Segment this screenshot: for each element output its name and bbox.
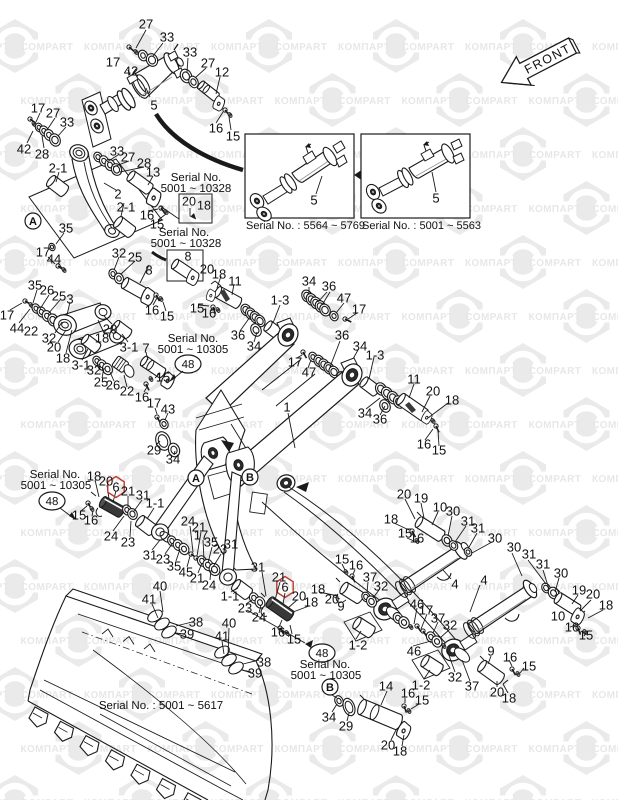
svg-text:31: 31 [536, 557, 550, 572]
svg-text:36: 36 [322, 279, 336, 294]
svg-text:23: 23 [238, 601, 252, 616]
svg-text:28: 28 [35, 147, 49, 162]
svg-text:32: 32 [112, 246, 126, 261]
svg-text:21: 21 [121, 484, 135, 499]
svg-text:11: 11 [228, 274, 242, 289]
svg-text:16: 16 [349, 558, 363, 573]
svg-text:25: 25 [128, 250, 142, 265]
svg-text:18: 18 [393, 744, 407, 759]
svg-text:7: 7 [142, 341, 149, 356]
svg-text:16: 16 [565, 620, 579, 635]
svg-text:36: 36 [373, 412, 387, 427]
svg-text:20: 20 [182, 195, 196, 209]
svg-text:18: 18 [599, 598, 613, 613]
svg-text:5: 5 [310, 193, 317, 208]
svg-text:5: 5 [150, 98, 157, 113]
svg-text:27: 27 [139, 17, 153, 32]
svg-text:1-2: 1-2 [349, 638, 368, 653]
svg-text:21: 21 [272, 570, 286, 585]
svg-text:20: 20 [397, 487, 411, 502]
svg-text:15: 15 [579, 628, 593, 643]
svg-text:25: 25 [52, 289, 66, 304]
svg-text:5001 ~ 10328: 5001 ~ 10328 [151, 238, 222, 250]
svg-text:16: 16 [209, 121, 223, 136]
svg-text:27: 27 [121, 150, 135, 165]
svg-text:15: 15 [335, 552, 349, 567]
svg-text:39: 39 [248, 666, 262, 681]
svg-text:26: 26 [106, 378, 120, 393]
svg-text:4: 4 [480, 573, 487, 588]
svg-text:30: 30 [446, 504, 460, 519]
svg-text:27: 27 [201, 56, 215, 71]
svg-text:5001 ~ 10305: 5001 ~ 10305 [21, 480, 92, 492]
svg-text:35: 35 [59, 221, 73, 236]
svg-text:34: 34 [166, 452, 180, 467]
svg-text:19: 19 [572, 583, 586, 598]
svg-text:30: 30 [507, 540, 521, 555]
svg-text:22: 22 [120, 384, 134, 399]
svg-text:A: A [192, 473, 200, 485]
svg-text:20: 20 [103, 322, 117, 337]
svg-text:33: 33 [183, 45, 197, 60]
svg-text:18: 18 [56, 351, 70, 366]
svg-text:18: 18 [311, 582, 325, 597]
svg-text:37: 37 [465, 679, 479, 694]
svg-text:18: 18 [384, 512, 398, 527]
svg-text:14: 14 [379, 679, 393, 694]
svg-text:24: 24 [104, 529, 118, 544]
svg-text:1-1: 1-1 [221, 589, 240, 604]
svg-text:41: 41 [215, 629, 229, 644]
svg-text:46: 46 [407, 644, 421, 659]
svg-text:5001 ~ 10305: 5001 ~ 10305 [158, 344, 229, 356]
svg-text:17: 17 [106, 55, 120, 70]
svg-text:16: 16 [271, 625, 285, 640]
svg-text:48: 48 [182, 359, 195, 371]
svg-text:31: 31 [522, 547, 536, 562]
svg-text:2-1: 2-1 [49, 161, 68, 176]
svg-text:17: 17 [147, 396, 161, 411]
svg-text:29: 29 [147, 443, 161, 458]
svg-text:22: 22 [24, 324, 38, 339]
svg-text:16: 16 [202, 306, 216, 321]
svg-text:29: 29 [339, 719, 353, 734]
svg-text:18: 18 [212, 267, 226, 282]
svg-text:B: B [246, 472, 254, 484]
svg-text:20: 20 [426, 384, 440, 399]
svg-text:1-1: 1-1 [146, 496, 165, 511]
svg-text:4: 4 [451, 577, 458, 592]
svg-text:44: 44 [10, 321, 24, 336]
svg-text:17: 17 [31, 101, 45, 116]
svg-text:15: 15 [415, 693, 429, 708]
svg-text:32: 32 [448, 670, 462, 685]
svg-text:48: 48 [46, 496, 59, 508]
svg-text:47: 47 [337, 291, 351, 306]
svg-text:12: 12 [215, 65, 229, 80]
svg-text:5: 5 [432, 191, 439, 206]
svg-text:31: 31 [471, 521, 485, 536]
svg-text:3: 3 [66, 292, 73, 307]
svg-text:16: 16 [410, 531, 424, 546]
svg-text:27: 27 [46, 106, 60, 121]
svg-text:Serial No. : 5564 ~ 5769: Serial No. : 5564 ~ 5769 [246, 220, 365, 232]
svg-text:3-1: 3-1 [120, 340, 139, 355]
svg-text:43: 43 [161, 402, 175, 417]
svg-text:47: 47 [302, 365, 316, 380]
svg-text:41: 41 [142, 592, 156, 607]
svg-text:23: 23 [121, 535, 135, 550]
svg-text:10: 10 [551, 609, 565, 624]
svg-text:15: 15 [156, 370, 170, 385]
svg-text:36: 36 [231, 328, 245, 343]
svg-text:Serial No. : 5001 ~ 5617: Serial No. : 5001 ~ 5617 [99, 700, 223, 712]
svg-text:18: 18 [502, 691, 516, 706]
svg-text:16: 16 [401, 686, 415, 701]
svg-text:17: 17 [352, 302, 366, 317]
svg-text:39: 39 [180, 627, 194, 642]
svg-text:15: 15 [522, 659, 536, 674]
svg-text:31: 31 [251, 560, 265, 575]
svg-text:33: 33 [160, 30, 174, 45]
svg-text:9: 9 [337, 599, 344, 614]
svg-text:B: B [326, 682, 334, 694]
svg-text:8: 8 [185, 250, 192, 264]
svg-text:18: 18 [197, 199, 211, 213]
svg-text:31: 31 [224, 537, 238, 552]
svg-text:16: 16 [84, 513, 98, 528]
svg-text:1-3: 1-3 [271, 293, 290, 308]
svg-text:2-1: 2-1 [117, 200, 136, 215]
svg-text:1: 1 [283, 400, 290, 415]
svg-text:15: 15 [160, 309, 174, 324]
svg-text:30: 30 [554, 566, 568, 581]
svg-text:9: 9 [487, 644, 494, 659]
svg-text:19: 19 [414, 491, 428, 506]
svg-text:15: 15 [432, 443, 446, 458]
svg-text:42: 42 [17, 142, 31, 157]
svg-text:34: 34 [322, 710, 336, 725]
svg-text:18: 18 [445, 393, 459, 408]
svg-text:36: 36 [335, 328, 349, 343]
svg-text:32: 32 [443, 618, 457, 633]
svg-text:16: 16 [145, 303, 159, 318]
svg-text:6: 6 [112, 480, 119, 495]
svg-text:11: 11 [407, 372, 421, 387]
svg-text:15: 15 [226, 129, 240, 144]
svg-text:32: 32 [374, 579, 388, 594]
svg-text:33: 33 [60, 115, 74, 130]
svg-text:34: 34 [302, 274, 316, 289]
svg-text:1-3: 1-3 [366, 348, 385, 363]
svg-text:18: 18 [304, 595, 318, 610]
svg-text:16: 16 [503, 650, 517, 665]
svg-text:20: 20 [99, 474, 113, 489]
svg-text:13: 13 [146, 165, 160, 180]
svg-text:34: 34 [358, 406, 372, 421]
svg-text:16: 16 [417, 437, 431, 452]
svg-text:17: 17 [288, 355, 302, 370]
svg-text:5001 ~ 10328: 5001 ~ 10328 [161, 183, 232, 195]
svg-text:Serial No. : 5001 ~ 5563: Serial No. : 5001 ~ 5563 [362, 220, 481, 232]
svg-text:A: A [29, 216, 37, 228]
svg-text:42: 42 [124, 64, 138, 79]
svg-text:24: 24 [202, 578, 216, 593]
